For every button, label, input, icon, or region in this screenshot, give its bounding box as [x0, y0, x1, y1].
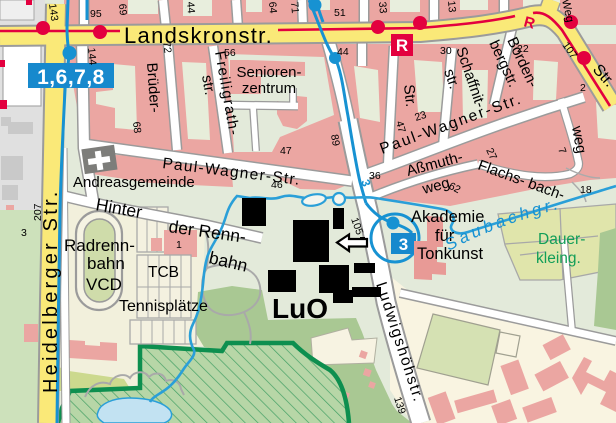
- svg-text:1: 1: [176, 239, 182, 251]
- svg-text:89: 89: [328, 133, 342, 147]
- svg-text:18: 18: [580, 184, 592, 196]
- svg-text:30: 30: [440, 45, 452, 57]
- svg-text:Andreasgemeinde: Andreasgemeinde: [73, 174, 195, 191]
- svg-text:69: 69: [116, 3, 129, 16]
- svg-text:Dauer-: Dauer-: [538, 231, 585, 248]
- svg-text:3: 3: [399, 235, 408, 254]
- svg-text:Landskronstr.: Landskronstr.: [124, 23, 273, 48]
- svg-text:56: 56: [224, 47, 236, 59]
- svg-text:Brüder-: Brüder-: [143, 62, 163, 113]
- svg-text:TCB: TCB: [148, 264, 179, 281]
- svg-text:Str.: Str.: [400, 84, 419, 108]
- svg-text:36: 36: [369, 170, 381, 182]
- svg-text:LuO: LuO: [272, 293, 328, 324]
- svg-text:207: 207: [32, 203, 44, 221]
- svg-text:1,6,7,8: 1,6,7,8: [37, 66, 105, 89]
- svg-text:95: 95: [90, 8, 102, 20]
- svg-text:2: 2: [580, 82, 586, 94]
- svg-text:kleing.: kleing.: [536, 250, 581, 267]
- svg-text:68: 68: [130, 121, 143, 134]
- svg-text:zentrum: zentrum: [242, 80, 296, 97]
- svg-text:Senioren-: Senioren-: [236, 64, 301, 81]
- svg-text:144: 144: [85, 47, 98, 66]
- svg-text:64: 64: [266, 1, 279, 14]
- svg-text:3: 3: [21, 227, 27, 239]
- svg-text:Radrenn-: Radrenn-: [64, 236, 135, 255]
- svg-text:str.: str.: [198, 74, 218, 97]
- svg-text:47: 47: [280, 145, 292, 157]
- svg-text:44: 44: [337, 46, 349, 58]
- svg-text:13: 13: [445, 0, 458, 13]
- svg-text:44: 44: [184, 1, 197, 14]
- svg-text:46: 46: [271, 179, 283, 191]
- svg-text:bahn: bahn: [87, 254, 125, 273]
- svg-text:R: R: [396, 36, 408, 55]
- svg-text:51: 51: [334, 7, 346, 19]
- svg-text:33: 33: [376, 1, 389, 14]
- svg-text:143: 143: [46, 3, 60, 22]
- svg-text:VCD: VCD: [86, 275, 122, 294]
- svg-text:Tennisplätze: Tennisplätze: [119, 298, 208, 315]
- svg-text:22: 22: [517, 43, 529, 55]
- svg-text:72: 72: [160, 41, 174, 54]
- svg-text:71: 71: [288, 1, 301, 14]
